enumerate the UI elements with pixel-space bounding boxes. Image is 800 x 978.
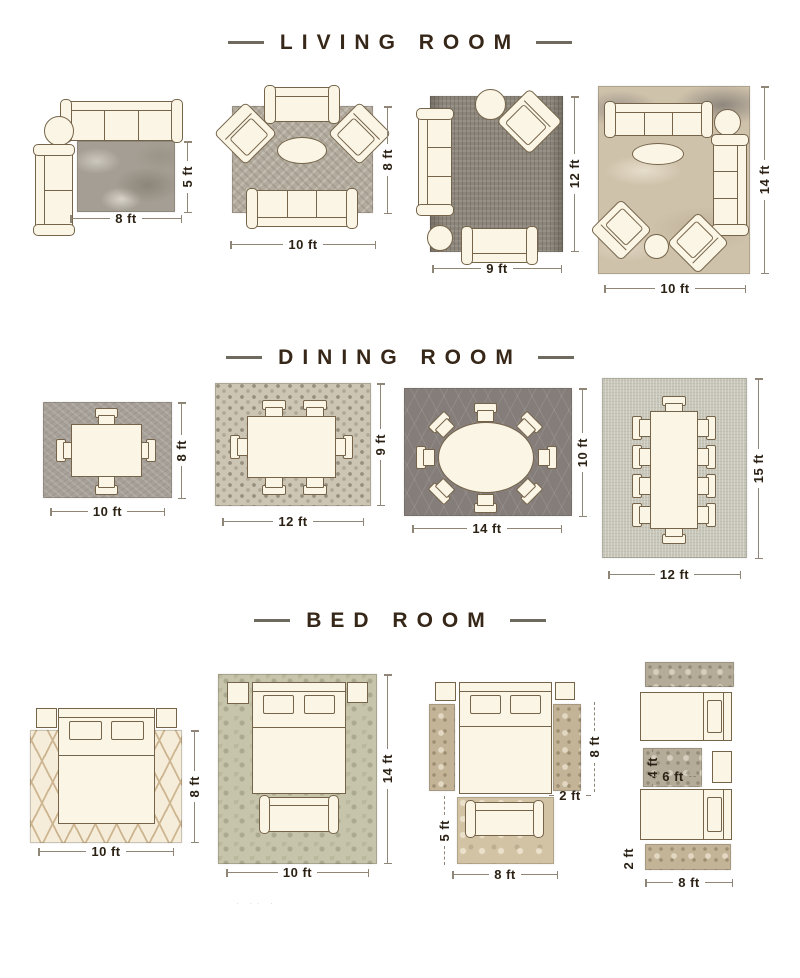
dining-table bbox=[247, 416, 336, 478]
section-title-text: LIVING ROOM bbox=[280, 32, 520, 53]
dining-chair bbox=[538, 446, 557, 469]
oval-dining-table bbox=[438, 422, 534, 493]
round-table bbox=[714, 109, 741, 136]
section-title-living-room: LIVING ROOM bbox=[0, 32, 800, 53]
dim-height: 9 ft bbox=[374, 383, 387, 506]
nightstand bbox=[435, 682, 456, 701]
dim-width: 10 ft bbox=[604, 282, 746, 295]
bed bbox=[252, 682, 346, 794]
twin-bed bbox=[640, 789, 732, 840]
dim-width: 10 ft bbox=[230, 238, 376, 251]
dining-chair bbox=[95, 476, 118, 495]
round-ottoman bbox=[644, 234, 669, 259]
side-runner-rug bbox=[429, 704, 455, 791]
dining-chair bbox=[696, 474, 716, 498]
dim-runner-width: 2 ft bbox=[549, 789, 591, 802]
rug-size-guide-infographic: LIVING ROOM 8 ft 5 ft 10 ft 8 ft bbox=[0, 0, 800, 978]
section-title-bed-room: BED ROOM bbox=[0, 610, 800, 631]
dim-width: 10 ft bbox=[226, 866, 369, 879]
dim-width: 8 ft bbox=[452, 868, 558, 881]
dim-height: 8 ft bbox=[381, 106, 394, 214]
dim-height: 15 ft bbox=[752, 378, 765, 559]
title-dash bbox=[510, 619, 546, 622]
rug-8x5 bbox=[77, 141, 175, 212]
dining-chair bbox=[303, 475, 327, 495]
dim-width: 12 ft bbox=[222, 515, 364, 528]
title-dash bbox=[536, 41, 572, 44]
dim-width: 8 ft bbox=[70, 212, 182, 225]
dining-chair bbox=[416, 446, 435, 469]
dim-height: 12 ft bbox=[568, 96, 581, 252]
dim-width: 10 ft bbox=[38, 845, 174, 858]
dining-chair bbox=[696, 503, 716, 527]
title-dash bbox=[228, 41, 264, 44]
section-title-text: DINING ROOM bbox=[278, 347, 522, 368]
dining-chair bbox=[262, 475, 286, 495]
round-ottoman bbox=[427, 225, 453, 251]
dim-width: 9 ft bbox=[432, 262, 562, 275]
dim-width: 12 ft bbox=[608, 568, 741, 581]
sofa-three-seat bbox=[62, 101, 181, 141]
runner-rug-bottom bbox=[645, 844, 731, 870]
bed bbox=[459, 682, 552, 794]
dining-chair bbox=[632, 445, 652, 469]
dim-height: 10 ft bbox=[576, 388, 589, 517]
bed bbox=[58, 708, 155, 824]
dining-chair bbox=[632, 474, 652, 498]
nightstand bbox=[555, 682, 575, 700]
dim-height: 14 ft bbox=[758, 86, 771, 274]
section-title-text: BED ROOM bbox=[306, 610, 494, 631]
sofa-three-seat-vertical bbox=[713, 136, 747, 234]
watermark: · ·· · bbox=[236, 898, 277, 908]
oval-coffee-table bbox=[277, 137, 327, 164]
bench bbox=[467, 802, 542, 836]
dining-chair bbox=[474, 403, 497, 422]
dining-chair bbox=[696, 445, 716, 469]
dining-chair bbox=[632, 503, 652, 527]
twin-bed bbox=[640, 692, 732, 741]
dim-height: 5 ft bbox=[181, 141, 194, 213]
loveseat bbox=[266, 87, 338, 122]
oval-coffee-table bbox=[632, 143, 684, 165]
section-title-dining-room: DINING ROOM bbox=[0, 347, 800, 368]
runner-rug-top bbox=[645, 662, 734, 687]
loveseat bbox=[463, 228, 536, 263]
dining-chair bbox=[474, 494, 497, 513]
sofa-three-seat bbox=[248, 190, 356, 227]
dining-chair bbox=[333, 435, 353, 459]
dim-width: 8 ft bbox=[645, 876, 733, 889]
dining-table bbox=[71, 424, 142, 477]
dim-runner-height: 2 ft bbox=[622, 843, 635, 873]
dim-height: 14 ft bbox=[381, 674, 394, 864]
sofa-three-seat-vertical bbox=[418, 110, 452, 214]
nightstand bbox=[36, 708, 57, 728]
dining-chair bbox=[696, 416, 716, 440]
dim-width: 14 ft bbox=[412, 522, 562, 535]
loveseat-vertical bbox=[35, 146, 73, 234]
dim-runner-length: 8 ft bbox=[588, 702, 601, 792]
nightstand bbox=[156, 708, 177, 728]
nightstand bbox=[712, 751, 732, 783]
dim-height: 8 ft bbox=[188, 730, 201, 843]
title-dash bbox=[538, 356, 574, 359]
sofa-three-seat bbox=[606, 103, 711, 136]
bench bbox=[261, 797, 337, 832]
side-runner-rug bbox=[553, 704, 581, 791]
dim-width: 10 ft bbox=[50, 505, 165, 518]
nightstand bbox=[347, 682, 368, 703]
nightstand bbox=[227, 682, 249, 704]
dining-chair bbox=[632, 416, 652, 440]
dim-accent-rug-width: 6 ft bbox=[650, 770, 696, 783]
dim-height: 8 ft bbox=[175, 402, 188, 499]
dim-foot-rug-height: 5 ft bbox=[438, 796, 451, 865]
title-dash bbox=[226, 356, 262, 359]
title-dash bbox=[254, 619, 290, 622]
dining-table bbox=[650, 411, 698, 529]
round-side-table bbox=[44, 116, 74, 146]
